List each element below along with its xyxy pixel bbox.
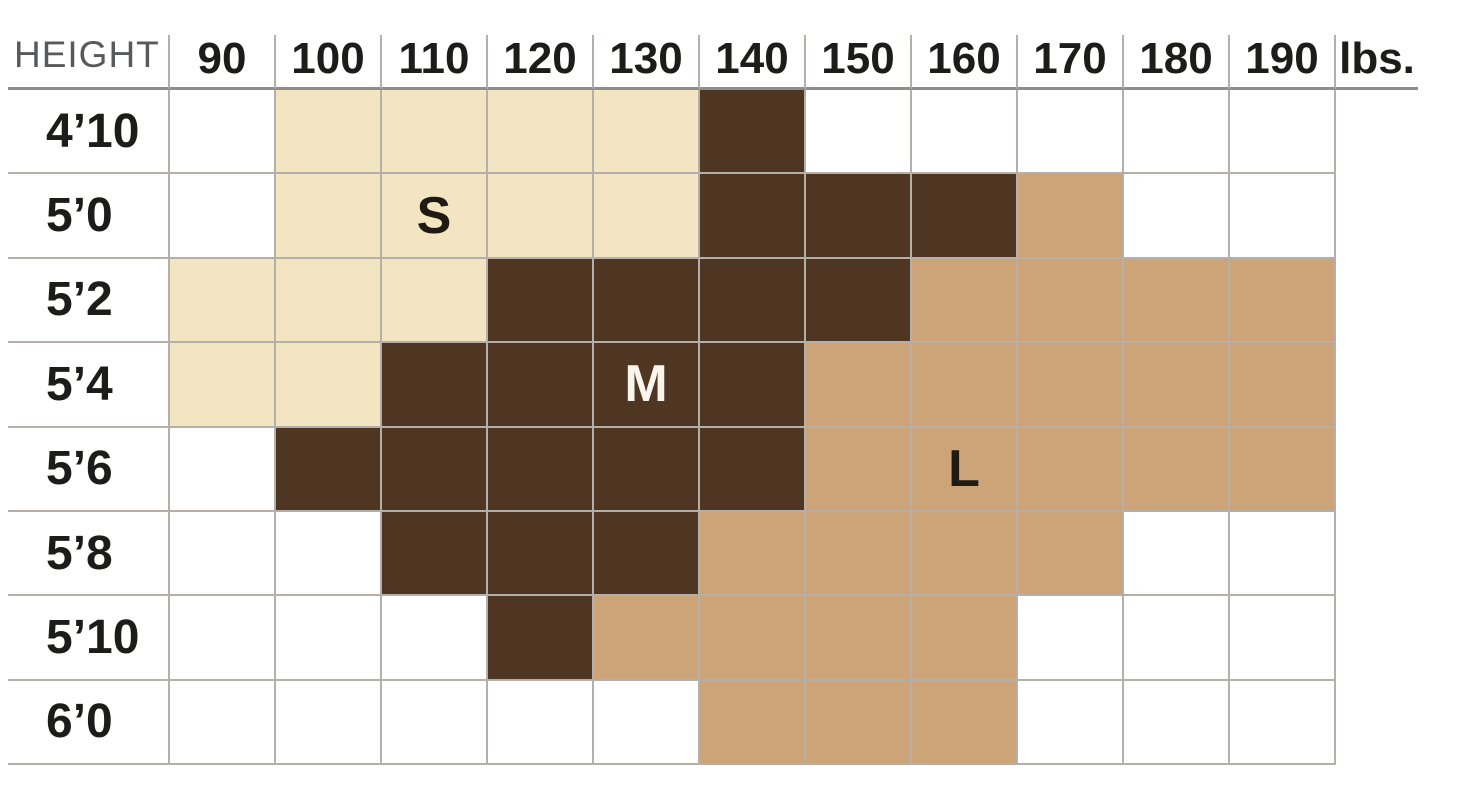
- empty-cell: [594, 681, 700, 765]
- size-chart-page: HEIGHT 90100110120130140150160170180190l…: [0, 0, 1463, 809]
- size-m-cell: [382, 343, 488, 427]
- size-l-cell: [700, 596, 806, 680]
- size-s-cell: [170, 259, 276, 343]
- empty-cell: [1018, 596, 1124, 680]
- right-margin-cell: [1336, 512, 1418, 596]
- empty-cell: [1124, 681, 1230, 765]
- size-s-cell: [382, 259, 488, 343]
- size-l-cell: [700, 681, 806, 765]
- empty-cell: [1230, 596, 1336, 680]
- weight-header-120: 120: [488, 35, 594, 90]
- size-s-cell: [488, 90, 594, 174]
- weight-header-150: 150: [806, 35, 912, 90]
- empty-cell: [912, 90, 1018, 174]
- size-l-cell: [912, 343, 1018, 427]
- size-m-cell: [700, 343, 806, 427]
- size-m-cell: [806, 174, 912, 258]
- size-s-cell: [276, 174, 382, 258]
- size-l-cell: [806, 596, 912, 680]
- empty-cell: [806, 90, 912, 174]
- right-margin-cell: [1336, 428, 1418, 512]
- size-label-m: M: [624, 358, 667, 410]
- weight-header-190: 190: [1230, 35, 1336, 90]
- height-column-header: HEIGHT: [8, 35, 170, 90]
- empty-cell: [1018, 681, 1124, 765]
- size-m-cell: [806, 259, 912, 343]
- size-s-cell: S: [382, 174, 488, 258]
- unit-header-lbs: lbs.: [1336, 35, 1418, 90]
- size-label-s: S: [417, 190, 452, 242]
- empty-cell: [1230, 90, 1336, 174]
- size-s-cell: [170, 343, 276, 427]
- row-label-height-8: 6’0: [8, 681, 170, 765]
- size-l-cell: [1124, 428, 1230, 512]
- row-label-height-5: 5’6: [8, 428, 170, 512]
- empty-cell: [276, 512, 382, 596]
- empty-cell: [1230, 512, 1336, 596]
- size-m-cell: [594, 259, 700, 343]
- size-m-cell: [488, 259, 594, 343]
- row-label-height-2: 5’0: [8, 174, 170, 258]
- row-label-height-6: 5’8: [8, 512, 170, 596]
- size-l-cell: [594, 596, 700, 680]
- size-chart-table: HEIGHT 90100110120130140150160170180190l…: [8, 35, 1418, 765]
- empty-cell: [170, 90, 276, 174]
- size-label-l: L: [948, 443, 980, 495]
- size-m-cell: [488, 343, 594, 427]
- size-l-cell: [1018, 512, 1124, 596]
- size-l-cell: L: [912, 428, 1018, 512]
- size-s-cell: [594, 174, 700, 258]
- size-l-cell: [912, 512, 1018, 596]
- size-l-cell: [1230, 343, 1336, 427]
- size-l-cell: [912, 259, 1018, 343]
- empty-cell: [488, 681, 594, 765]
- empty-cell: [1018, 90, 1124, 174]
- weight-header-160: 160: [912, 35, 1018, 90]
- row-label-height-3: 5’2: [8, 259, 170, 343]
- weight-header-140: 140: [700, 35, 806, 90]
- size-l-cell: [912, 596, 1018, 680]
- size-l-cell: [1124, 343, 1230, 427]
- size-l-cell: [1230, 259, 1336, 343]
- size-l-cell: [1018, 259, 1124, 343]
- right-margin-cell: [1336, 90, 1418, 174]
- size-m-cell: [488, 512, 594, 596]
- empty-cell: [170, 596, 276, 680]
- empty-cell: [1230, 681, 1336, 765]
- empty-cell: [1124, 174, 1230, 258]
- size-l-cell: [806, 512, 912, 596]
- size-m-cell: [700, 259, 806, 343]
- size-l-cell: [912, 681, 1018, 765]
- weight-header-90: 90: [170, 35, 276, 90]
- right-margin-cell: [1336, 681, 1418, 765]
- empty-cell: [382, 596, 488, 680]
- size-s-cell: [488, 174, 594, 258]
- empty-cell: [1230, 174, 1336, 258]
- size-l-cell: [700, 512, 806, 596]
- size-m-cell: M: [594, 343, 700, 427]
- right-margin-cell: [1336, 596, 1418, 680]
- right-margin-cell: [1336, 259, 1418, 343]
- size-s-cell: [594, 90, 700, 174]
- size-m-cell: [912, 174, 1018, 258]
- size-m-cell: [594, 512, 700, 596]
- empty-cell: [382, 681, 488, 765]
- right-margin-cell: [1336, 343, 1418, 427]
- right-margin-cell: [1336, 174, 1418, 258]
- size-s-cell: [276, 90, 382, 174]
- size-s-cell: [382, 90, 488, 174]
- size-l-cell: [806, 681, 912, 765]
- weight-header-100: 100: [276, 35, 382, 90]
- size-l-cell: [1124, 259, 1230, 343]
- size-l-cell: [806, 343, 912, 427]
- empty-cell: [1124, 512, 1230, 596]
- empty-cell: [170, 681, 276, 765]
- size-m-cell: [700, 428, 806, 512]
- weight-header-110: 110: [382, 35, 488, 90]
- row-label-height-1: 4’10: [8, 90, 170, 174]
- size-m-cell: [700, 174, 806, 258]
- empty-cell: [276, 681, 382, 765]
- empty-cell: [170, 512, 276, 596]
- size-m-cell: [382, 428, 488, 512]
- row-label-height-7: 5’10: [8, 596, 170, 680]
- size-l-cell: [1018, 343, 1124, 427]
- size-l-cell: [1018, 174, 1124, 258]
- weight-header-170: 170: [1018, 35, 1124, 90]
- size-m-cell: [488, 428, 594, 512]
- size-s-cell: [276, 259, 382, 343]
- size-l-cell: [1230, 428, 1336, 512]
- size-m-cell: [594, 428, 700, 512]
- empty-cell: [170, 428, 276, 512]
- size-m-cell: [382, 512, 488, 596]
- row-label-height-4: 5’4: [8, 343, 170, 427]
- size-m-cell: [488, 596, 594, 680]
- empty-cell: [1124, 596, 1230, 680]
- size-l-cell: [1018, 428, 1124, 512]
- size-l-cell: [806, 428, 912, 512]
- empty-cell: [276, 596, 382, 680]
- size-m-cell: [700, 90, 806, 174]
- empty-cell: [1124, 90, 1230, 174]
- size-s-cell: [276, 343, 382, 427]
- weight-header-180: 180: [1124, 35, 1230, 90]
- weight-header-130: 130: [594, 35, 700, 90]
- empty-cell: [170, 174, 276, 258]
- size-m-cell: [276, 428, 382, 512]
